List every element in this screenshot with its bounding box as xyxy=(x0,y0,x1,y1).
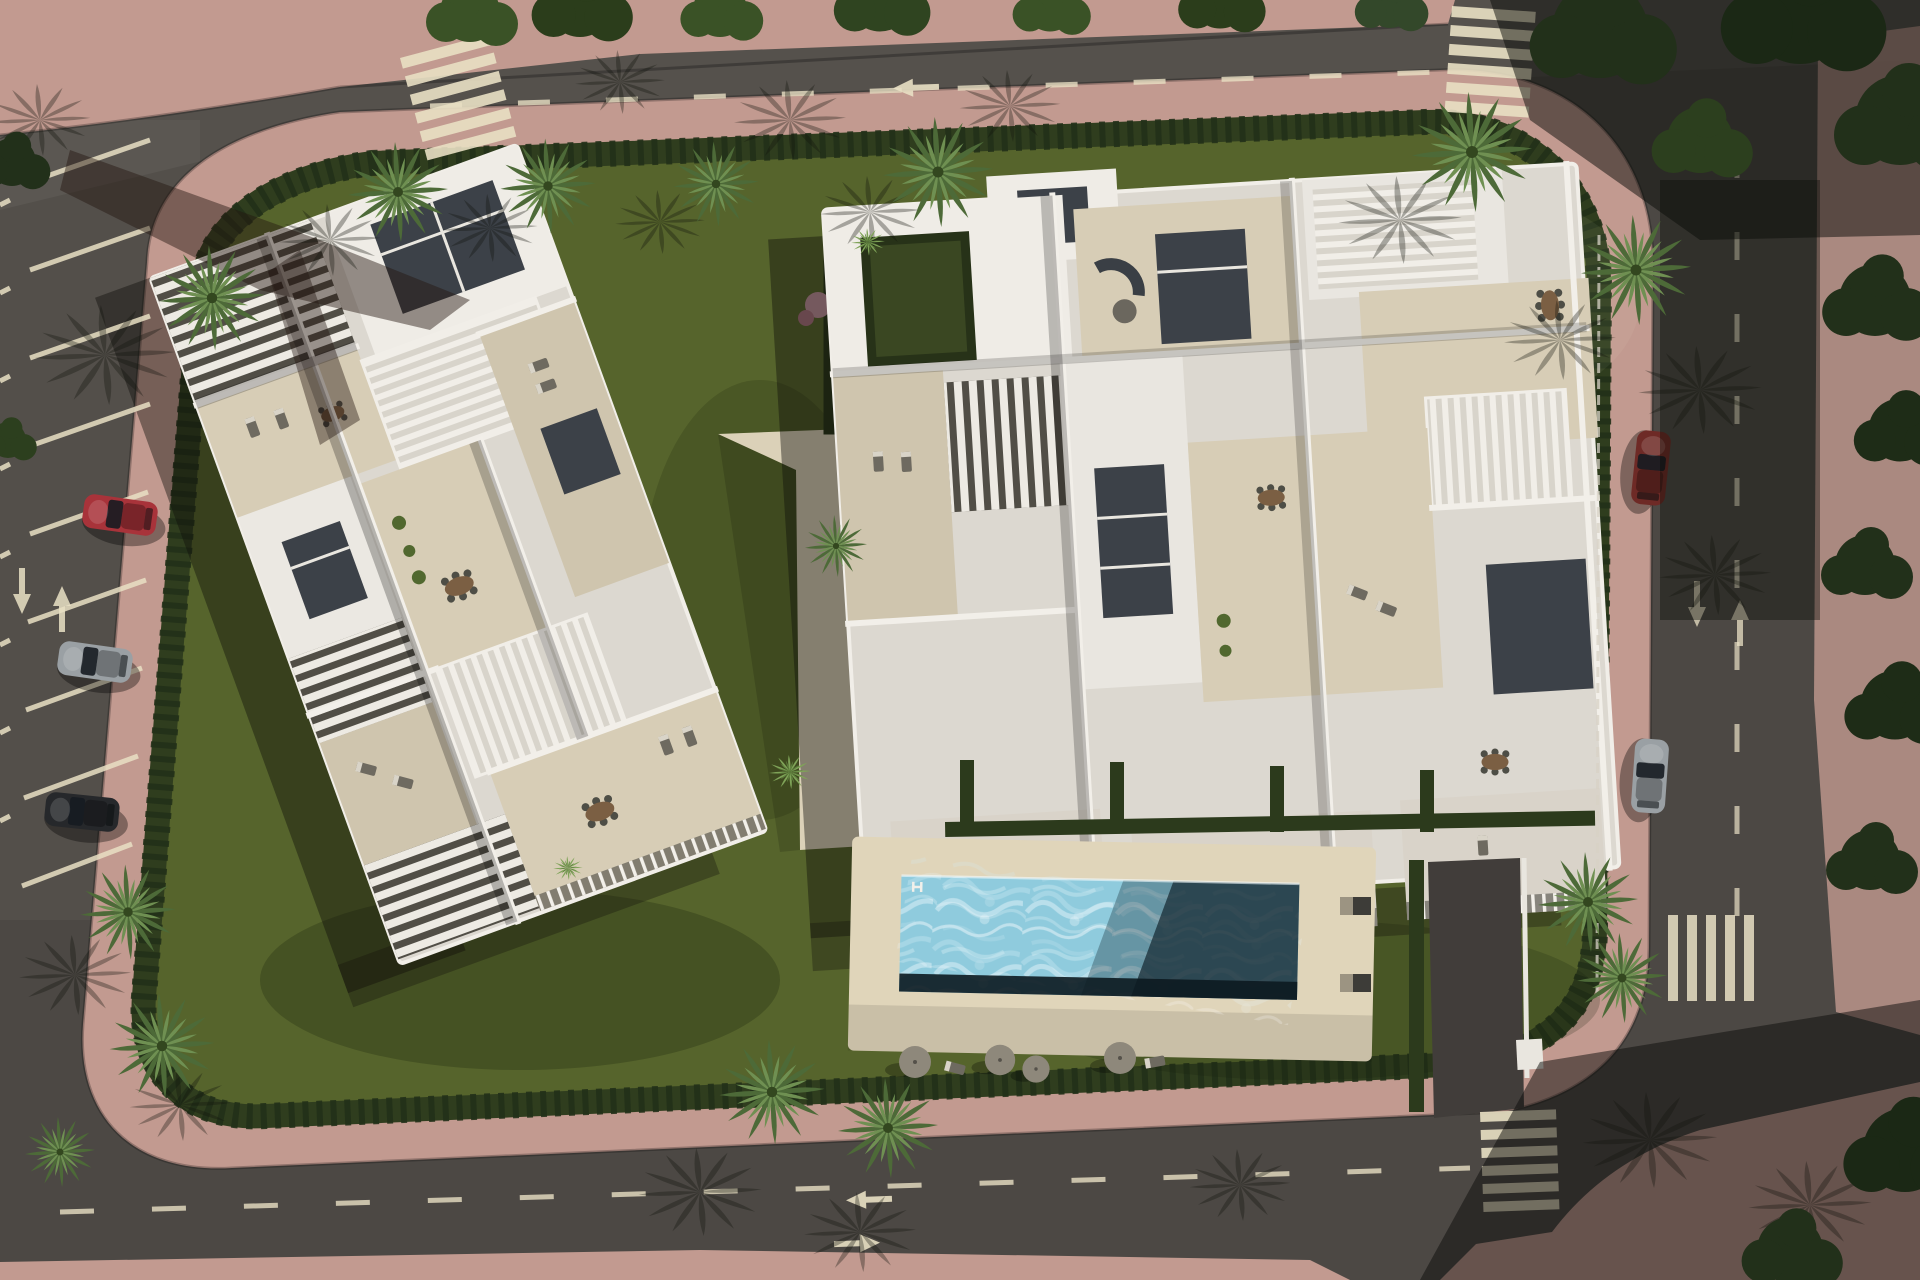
deck-daybed xyxy=(1340,897,1371,915)
garden-tableset xyxy=(1481,749,1510,776)
terrace xyxy=(833,367,958,623)
pergola-slats xyxy=(944,375,1072,512)
glass-courtyard xyxy=(1486,559,1594,695)
hedge-garden xyxy=(865,236,972,362)
glass-courtyard xyxy=(1155,229,1252,344)
scene-canvas xyxy=(0,0,1920,1280)
east-building xyxy=(821,140,1627,957)
deck-daybed xyxy=(1340,974,1371,992)
aerial-render xyxy=(0,0,1920,1280)
louver-roof xyxy=(1425,390,1571,508)
pool xyxy=(848,837,1376,1062)
glass-courtyard xyxy=(1094,464,1173,618)
